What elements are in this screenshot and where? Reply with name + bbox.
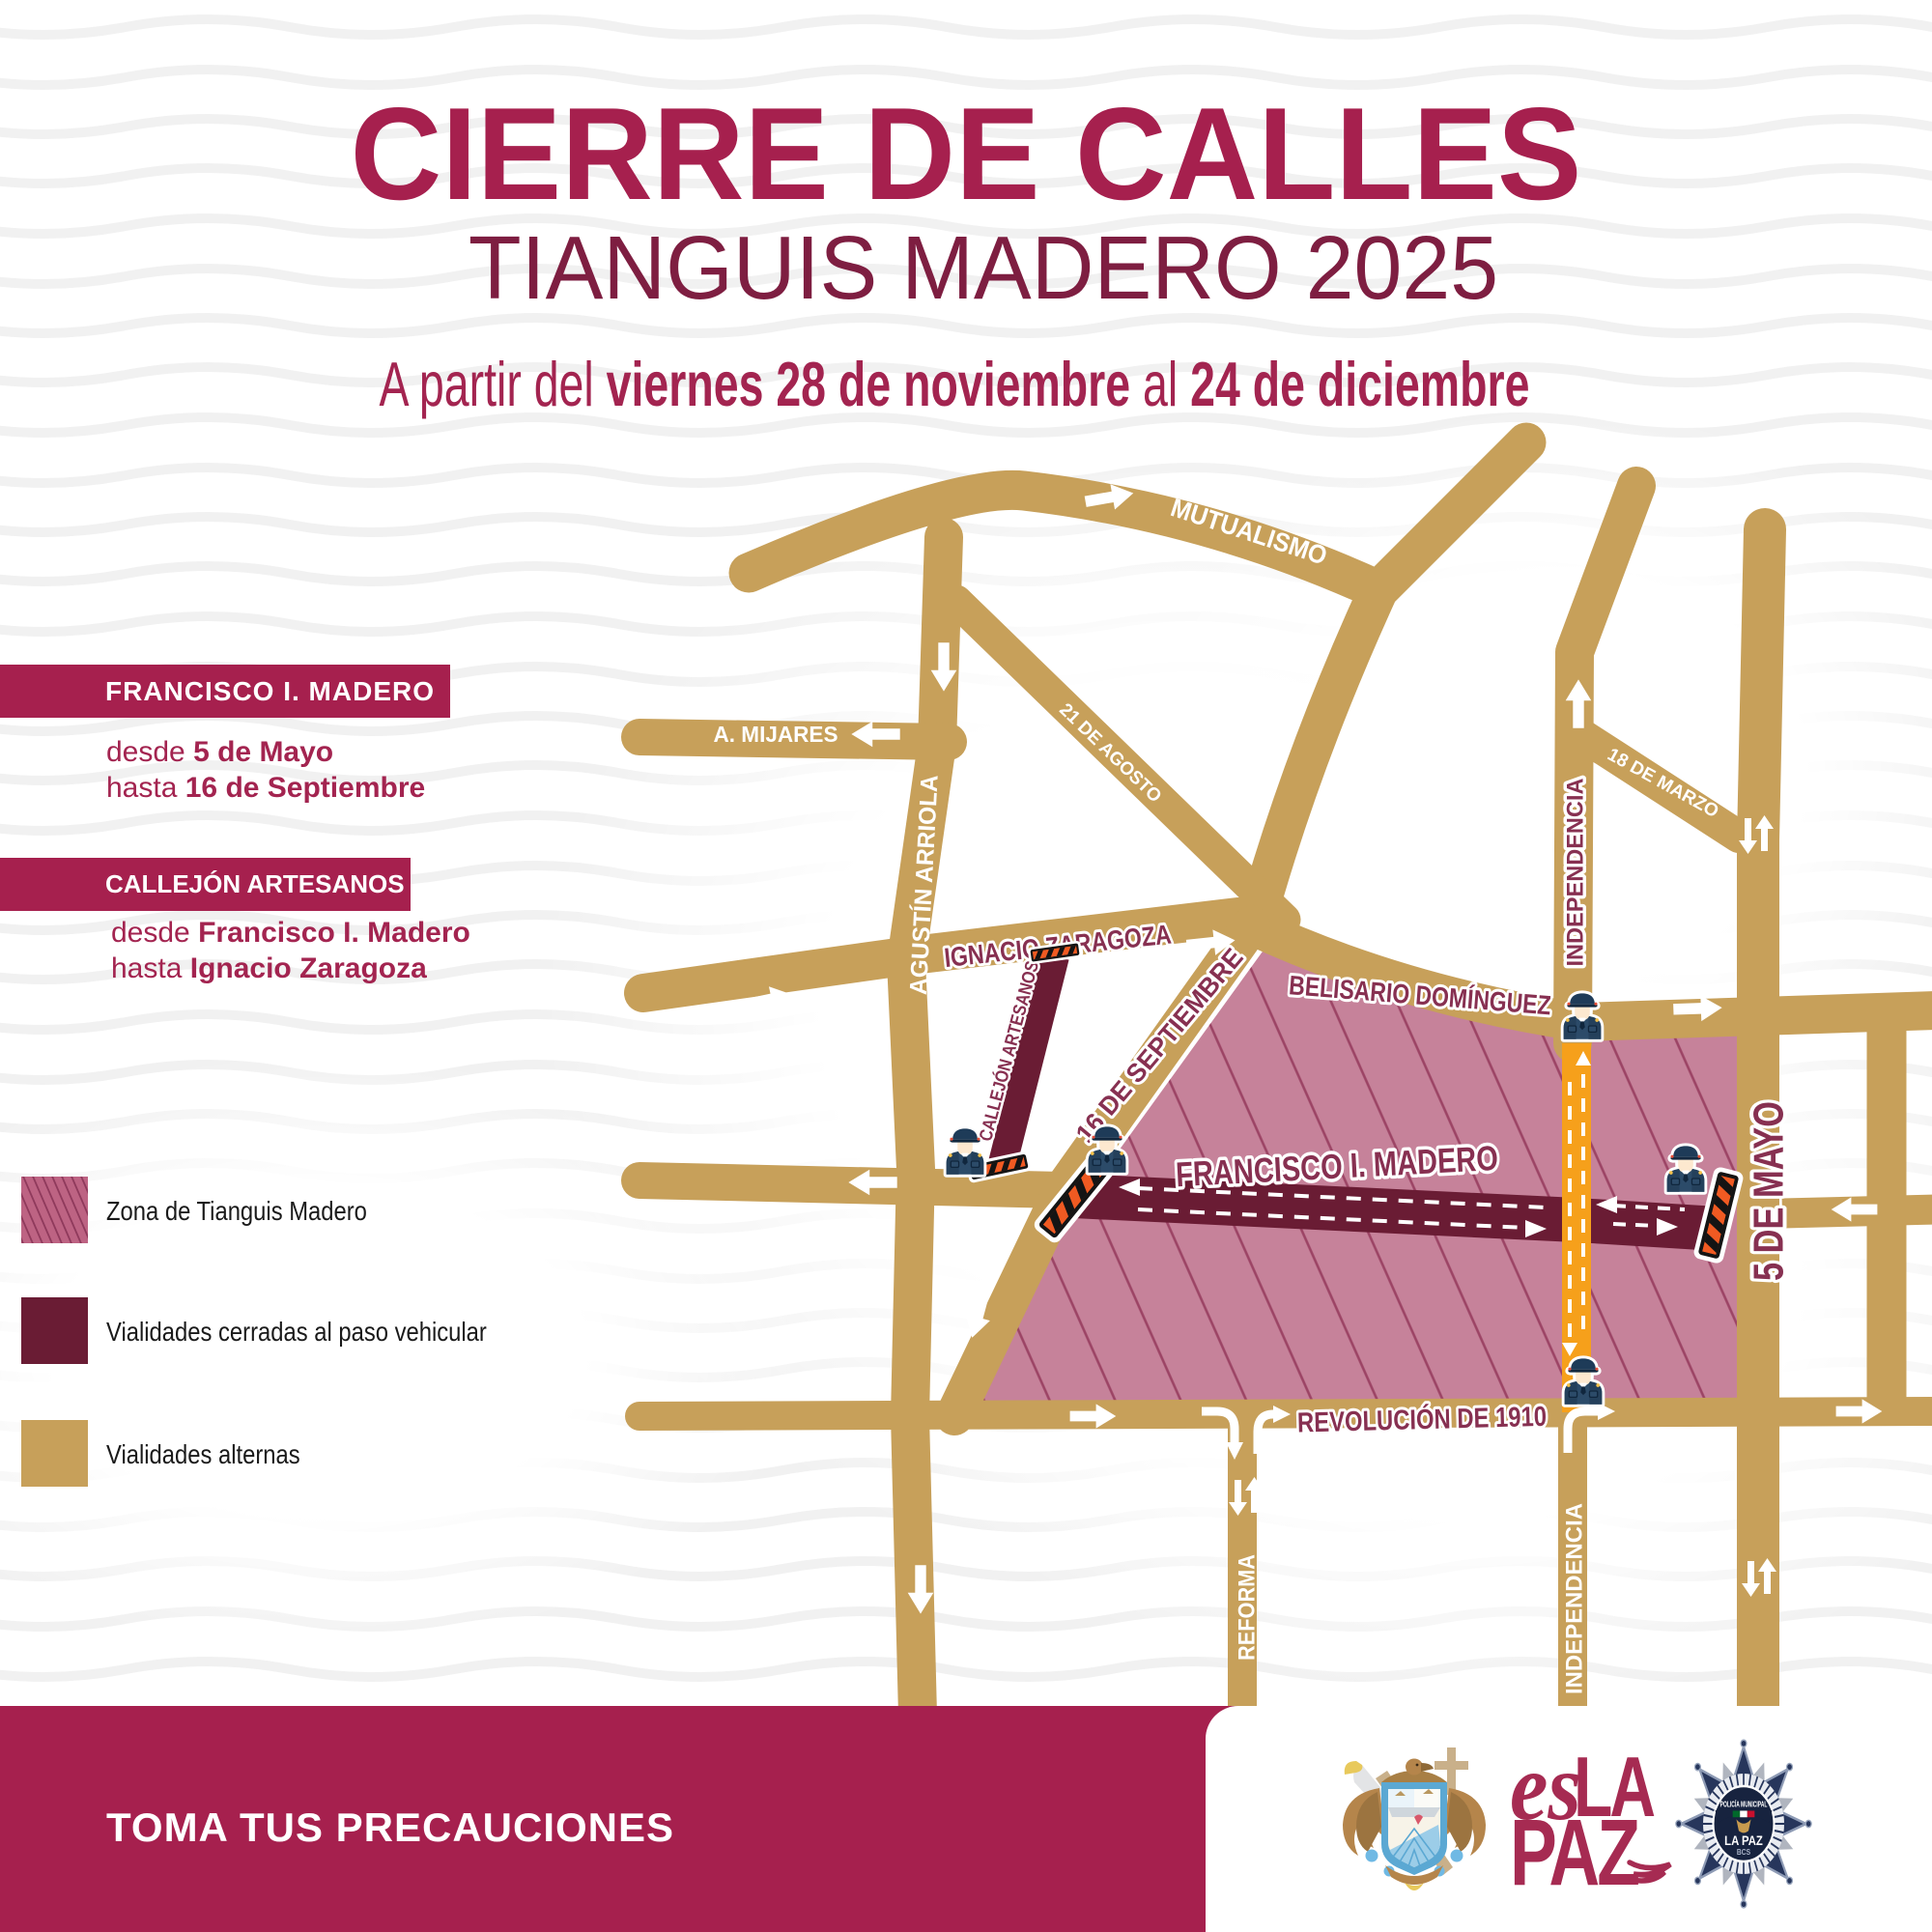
svg-text:POLICÍA MUNICIPAL: POLICÍA MUNICIPAL bbox=[1720, 1800, 1768, 1809]
svg-text:PAZ: PAZ bbox=[1510, 1800, 1638, 1905]
svg-text:BCS: BCS bbox=[1737, 1848, 1750, 1858]
svg-text:LA PAZ: LA PAZ bbox=[1724, 1833, 1763, 1849]
